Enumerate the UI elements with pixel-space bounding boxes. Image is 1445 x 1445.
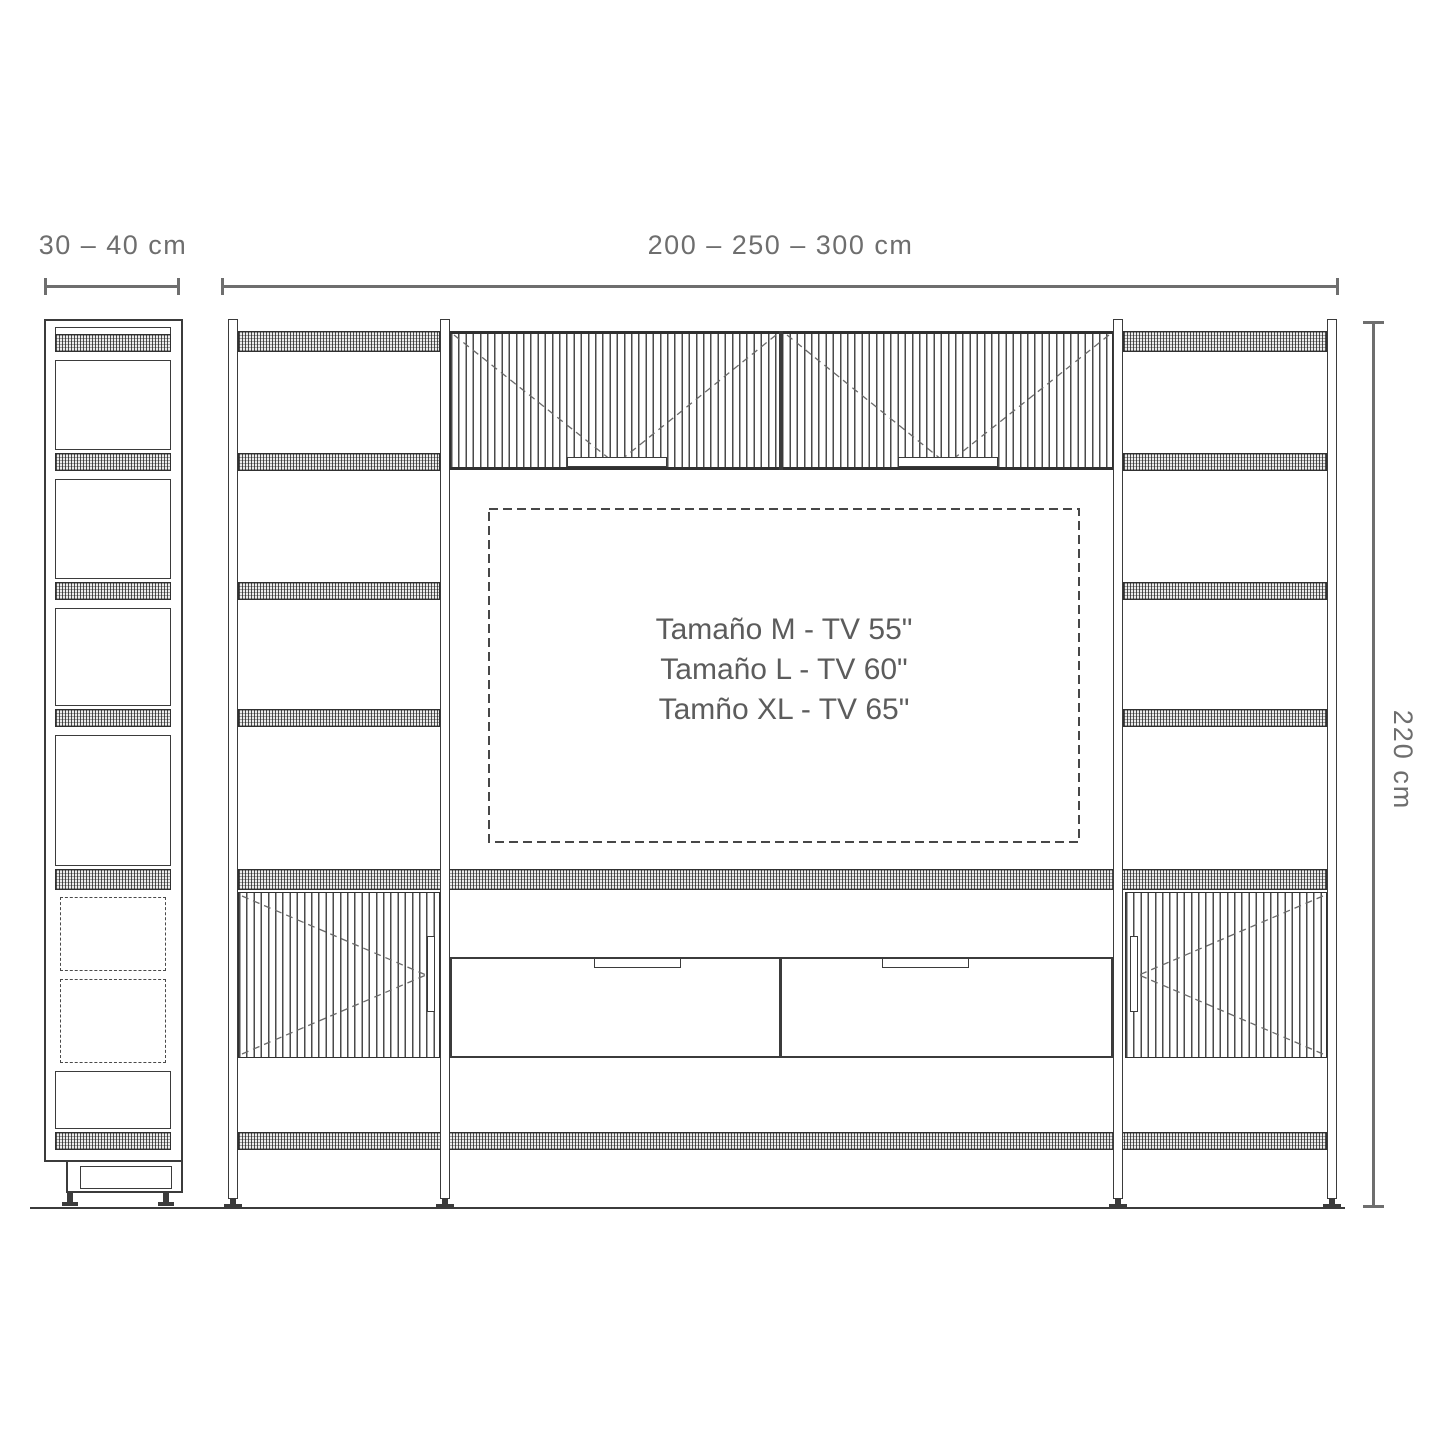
side-width-dimension-tick-left xyxy=(44,278,47,295)
left-column-shelf-band xyxy=(238,331,440,352)
side-width-dimension-line xyxy=(46,285,179,288)
left-column-shelf-band xyxy=(238,453,440,471)
lower-left-door-swing-lines xyxy=(238,892,440,1058)
side-shelf-band xyxy=(55,1132,171,1150)
post-outer-left xyxy=(228,319,238,1199)
post-inner-left xyxy=(440,319,450,1199)
side-hidden-drawer-lower xyxy=(60,979,166,1063)
lower-left-door-handle xyxy=(427,936,435,1012)
height-dimension-tick-top xyxy=(1363,321,1384,324)
upper-left-door-handle xyxy=(567,457,667,467)
right-column-shelf-band xyxy=(1123,453,1327,471)
right-column-shelf-band xyxy=(1123,709,1327,727)
right-column-shelf-band xyxy=(1123,331,1327,352)
side-shelf-band xyxy=(55,869,171,890)
side-foot-plate xyxy=(62,1202,78,1206)
left-column-shelf-band xyxy=(238,709,440,727)
side-compartment xyxy=(55,608,171,706)
lower-right-door-swing-lines xyxy=(1125,892,1327,1058)
side-compartment xyxy=(55,479,171,579)
side-hidden-drawer-upper xyxy=(60,897,166,971)
tv-size-line: Tamaño L - TV 60" xyxy=(534,650,1034,690)
front-width-dimension-tick-left xyxy=(221,278,224,295)
tv-size-labels: Tamaño M - TV 55" Tamaño L - TV 60" Tamñ… xyxy=(534,610,1034,730)
right-drawer-handle xyxy=(882,958,969,968)
height-dimension-line xyxy=(1372,322,1375,1208)
height-dimension-tick-bottom xyxy=(1363,1205,1384,1208)
upper-right-door-handle xyxy=(898,457,998,467)
post-outer-right xyxy=(1327,319,1337,1199)
side-compartment xyxy=(55,735,171,866)
front-shelf-band-full xyxy=(238,1132,1327,1150)
right-column-shelf-band xyxy=(1123,582,1327,600)
front-width-dimension-tick-right xyxy=(1336,278,1339,295)
front-width-dimension-line xyxy=(222,285,1339,288)
upper-doors-swing-lines xyxy=(450,331,1113,470)
drawer-divider xyxy=(779,957,782,1058)
side-plinth-box xyxy=(80,1166,172,1189)
side-shelf-band xyxy=(55,453,171,471)
side-shelf-band xyxy=(55,709,171,727)
side-width-dimension-label: 30 – 40 cm xyxy=(24,230,202,261)
left-column-shelf-band xyxy=(238,582,440,600)
side-compartment xyxy=(55,1071,171,1129)
technical-drawing-canvas: 30 – 40 cm 200 – 250 – 300 cm 220 cm xyxy=(0,0,1445,1445)
tv-size-line: Tamaño M - TV 55" xyxy=(534,610,1034,650)
ground-line xyxy=(30,1207,1345,1209)
side-shelf-band xyxy=(55,582,171,600)
side-foot-plate xyxy=(158,1202,174,1206)
side-width-dimension-tick-right xyxy=(177,278,180,295)
front-shelf-band-full xyxy=(238,869,1327,890)
height-dimension-label: 220 cm xyxy=(1388,704,1418,816)
post-inner-right xyxy=(1113,319,1123,1199)
front-width-dimension-label: 200 – 250 – 300 cm xyxy=(222,230,1339,261)
side-compartment xyxy=(55,360,171,450)
tv-size-line: Tamño XL - TV 65" xyxy=(534,690,1034,730)
side-base-step-line xyxy=(66,1162,68,1193)
left-drawer-handle xyxy=(594,958,681,968)
lower-right-door-handle xyxy=(1130,936,1138,1012)
side-base-right-line xyxy=(181,1162,183,1193)
side-shelf-band xyxy=(55,334,171,352)
